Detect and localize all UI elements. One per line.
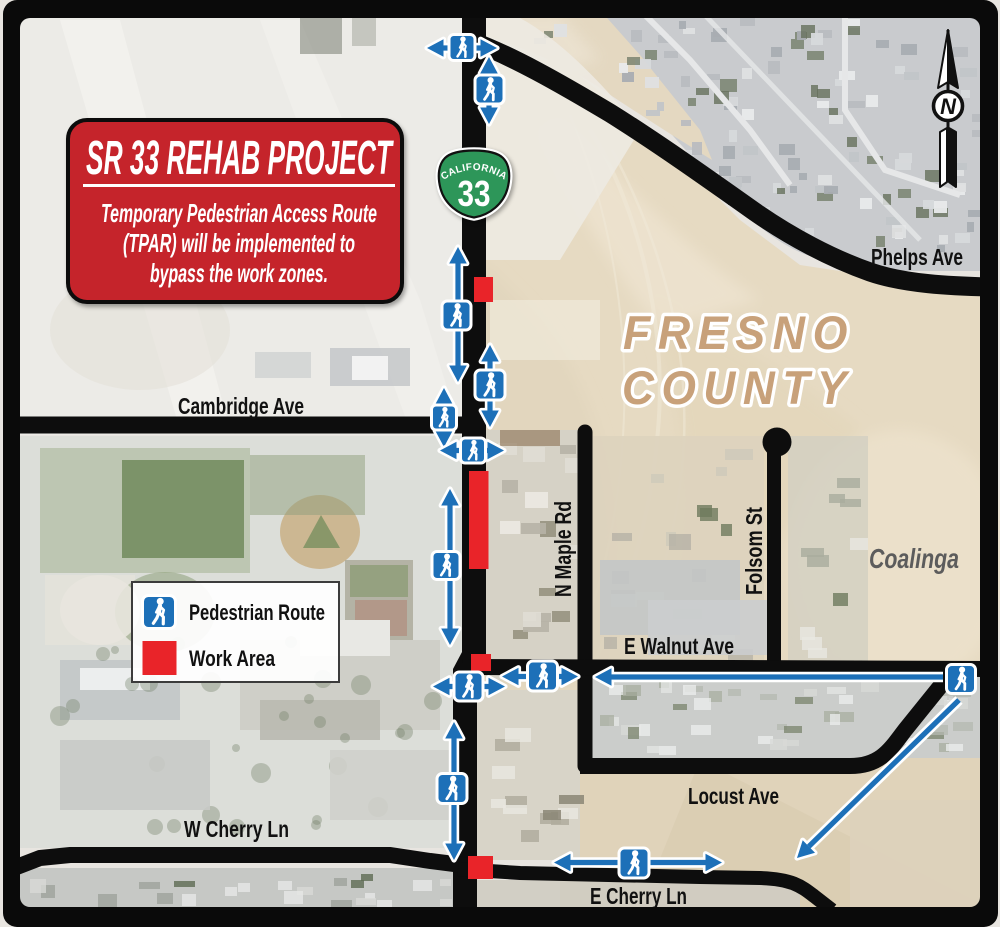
svg-text:33: 33: [458, 173, 491, 214]
svg-text:COUNTY: COUNTY: [622, 361, 854, 414]
svg-text:Locust Ave: Locust Ave: [688, 783, 779, 809]
svg-text:N Maple Rd: N Maple Rd: [550, 501, 576, 597]
svg-text:W Cherry Ln: W Cherry Ln: [184, 816, 289, 842]
svg-text:(TPAR) will be implemented to: (TPAR) will be implemented to: [123, 228, 355, 258]
svg-text:N: N: [940, 94, 957, 119]
svg-text:E Cherry Ln: E Cherry Ln: [590, 883, 687, 909]
svg-text:E Walnut Ave: E Walnut Ave: [624, 633, 734, 659]
svg-text:Folsom St: Folsom St: [741, 507, 767, 595]
svg-text:Temporary Pedestrian Access Ro: Temporary Pedestrian Access Route: [101, 198, 377, 228]
svg-text:SR 33 REHAB PROJECT: SR 33 REHAB PROJECT: [86, 132, 394, 185]
svg-text:Cambridge Ave: Cambridge Ave: [178, 393, 304, 419]
svg-text:Coalinga: Coalinga: [869, 543, 959, 574]
svg-text:Phelps Ave: Phelps Ave: [871, 244, 963, 270]
svg-text:Pedestrian Route: Pedestrian Route: [189, 600, 325, 625]
svg-text:FRESNO: FRESNO: [623, 306, 855, 359]
svg-text:Work Area: Work Area: [189, 646, 276, 671]
svg-text:bypass the work zones.: bypass the work zones.: [150, 258, 328, 288]
